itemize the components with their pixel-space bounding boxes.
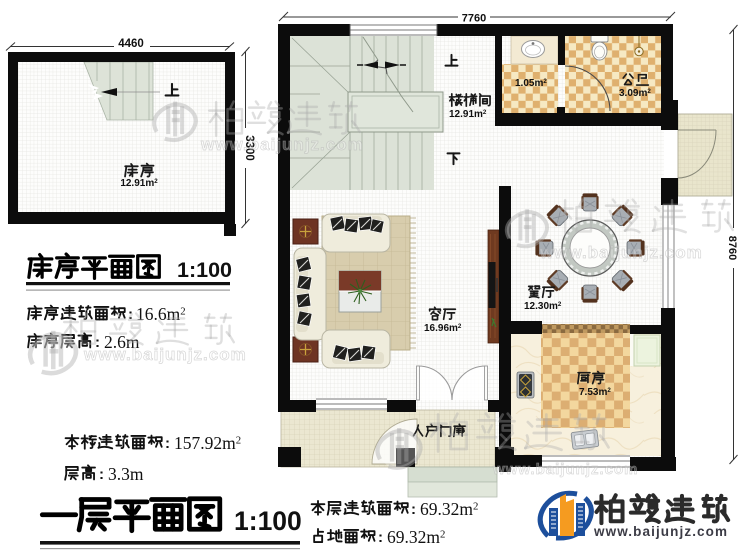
svg-text:www.baijunjz.com: www.baijunjz.com: [83, 345, 247, 364]
svg-text:7760: 7760: [462, 13, 486, 25]
svg-text:69.32m2: 69.32m2: [420, 499, 478, 519]
svg-text:www.baijunjz.com: www.baijunjz.com: [492, 461, 638, 478]
svg-text:1.05m2: 1.05m2: [515, 78, 547, 89]
svg-text:1:100: 1:100: [234, 506, 302, 536]
svg-text:7.53m2: 7.53m2: [579, 387, 611, 398]
svg-text:1:100: 1:100: [177, 258, 232, 282]
svg-text:3.09m2: 3.09m2: [619, 88, 651, 99]
svg-text::: :: [378, 529, 383, 546]
svg-text:69.32m2: 69.32m2: [387, 527, 445, 547]
svg-text:16.96m2: 16.96m2: [424, 323, 462, 334]
svg-text:www.baijunjz.com: www.baijunjz.com: [539, 243, 703, 262]
svg-text:3.3m: 3.3m: [108, 464, 144, 484]
svg-text:157.92m2: 157.92m2: [174, 433, 241, 453]
svg-text:8760: 8760: [726, 236, 738, 260]
svg-text:www.baijunjz.com: www.baijunjz.com: [200, 135, 364, 154]
svg-text:12.91m2: 12.91m2: [120, 178, 158, 189]
svg-text:www.baijunjz.com: www.baijunjz.com: [593, 524, 728, 539]
svg-text:4460: 4460: [118, 38, 144, 50]
svg-text:12.30m2: 12.30m2: [524, 301, 562, 312]
svg-text::: :: [99, 466, 104, 483]
svg-text::: :: [411, 501, 416, 518]
svg-text::: :: [165, 435, 170, 452]
svg-text:12.91m2: 12.91m2: [449, 109, 487, 120]
